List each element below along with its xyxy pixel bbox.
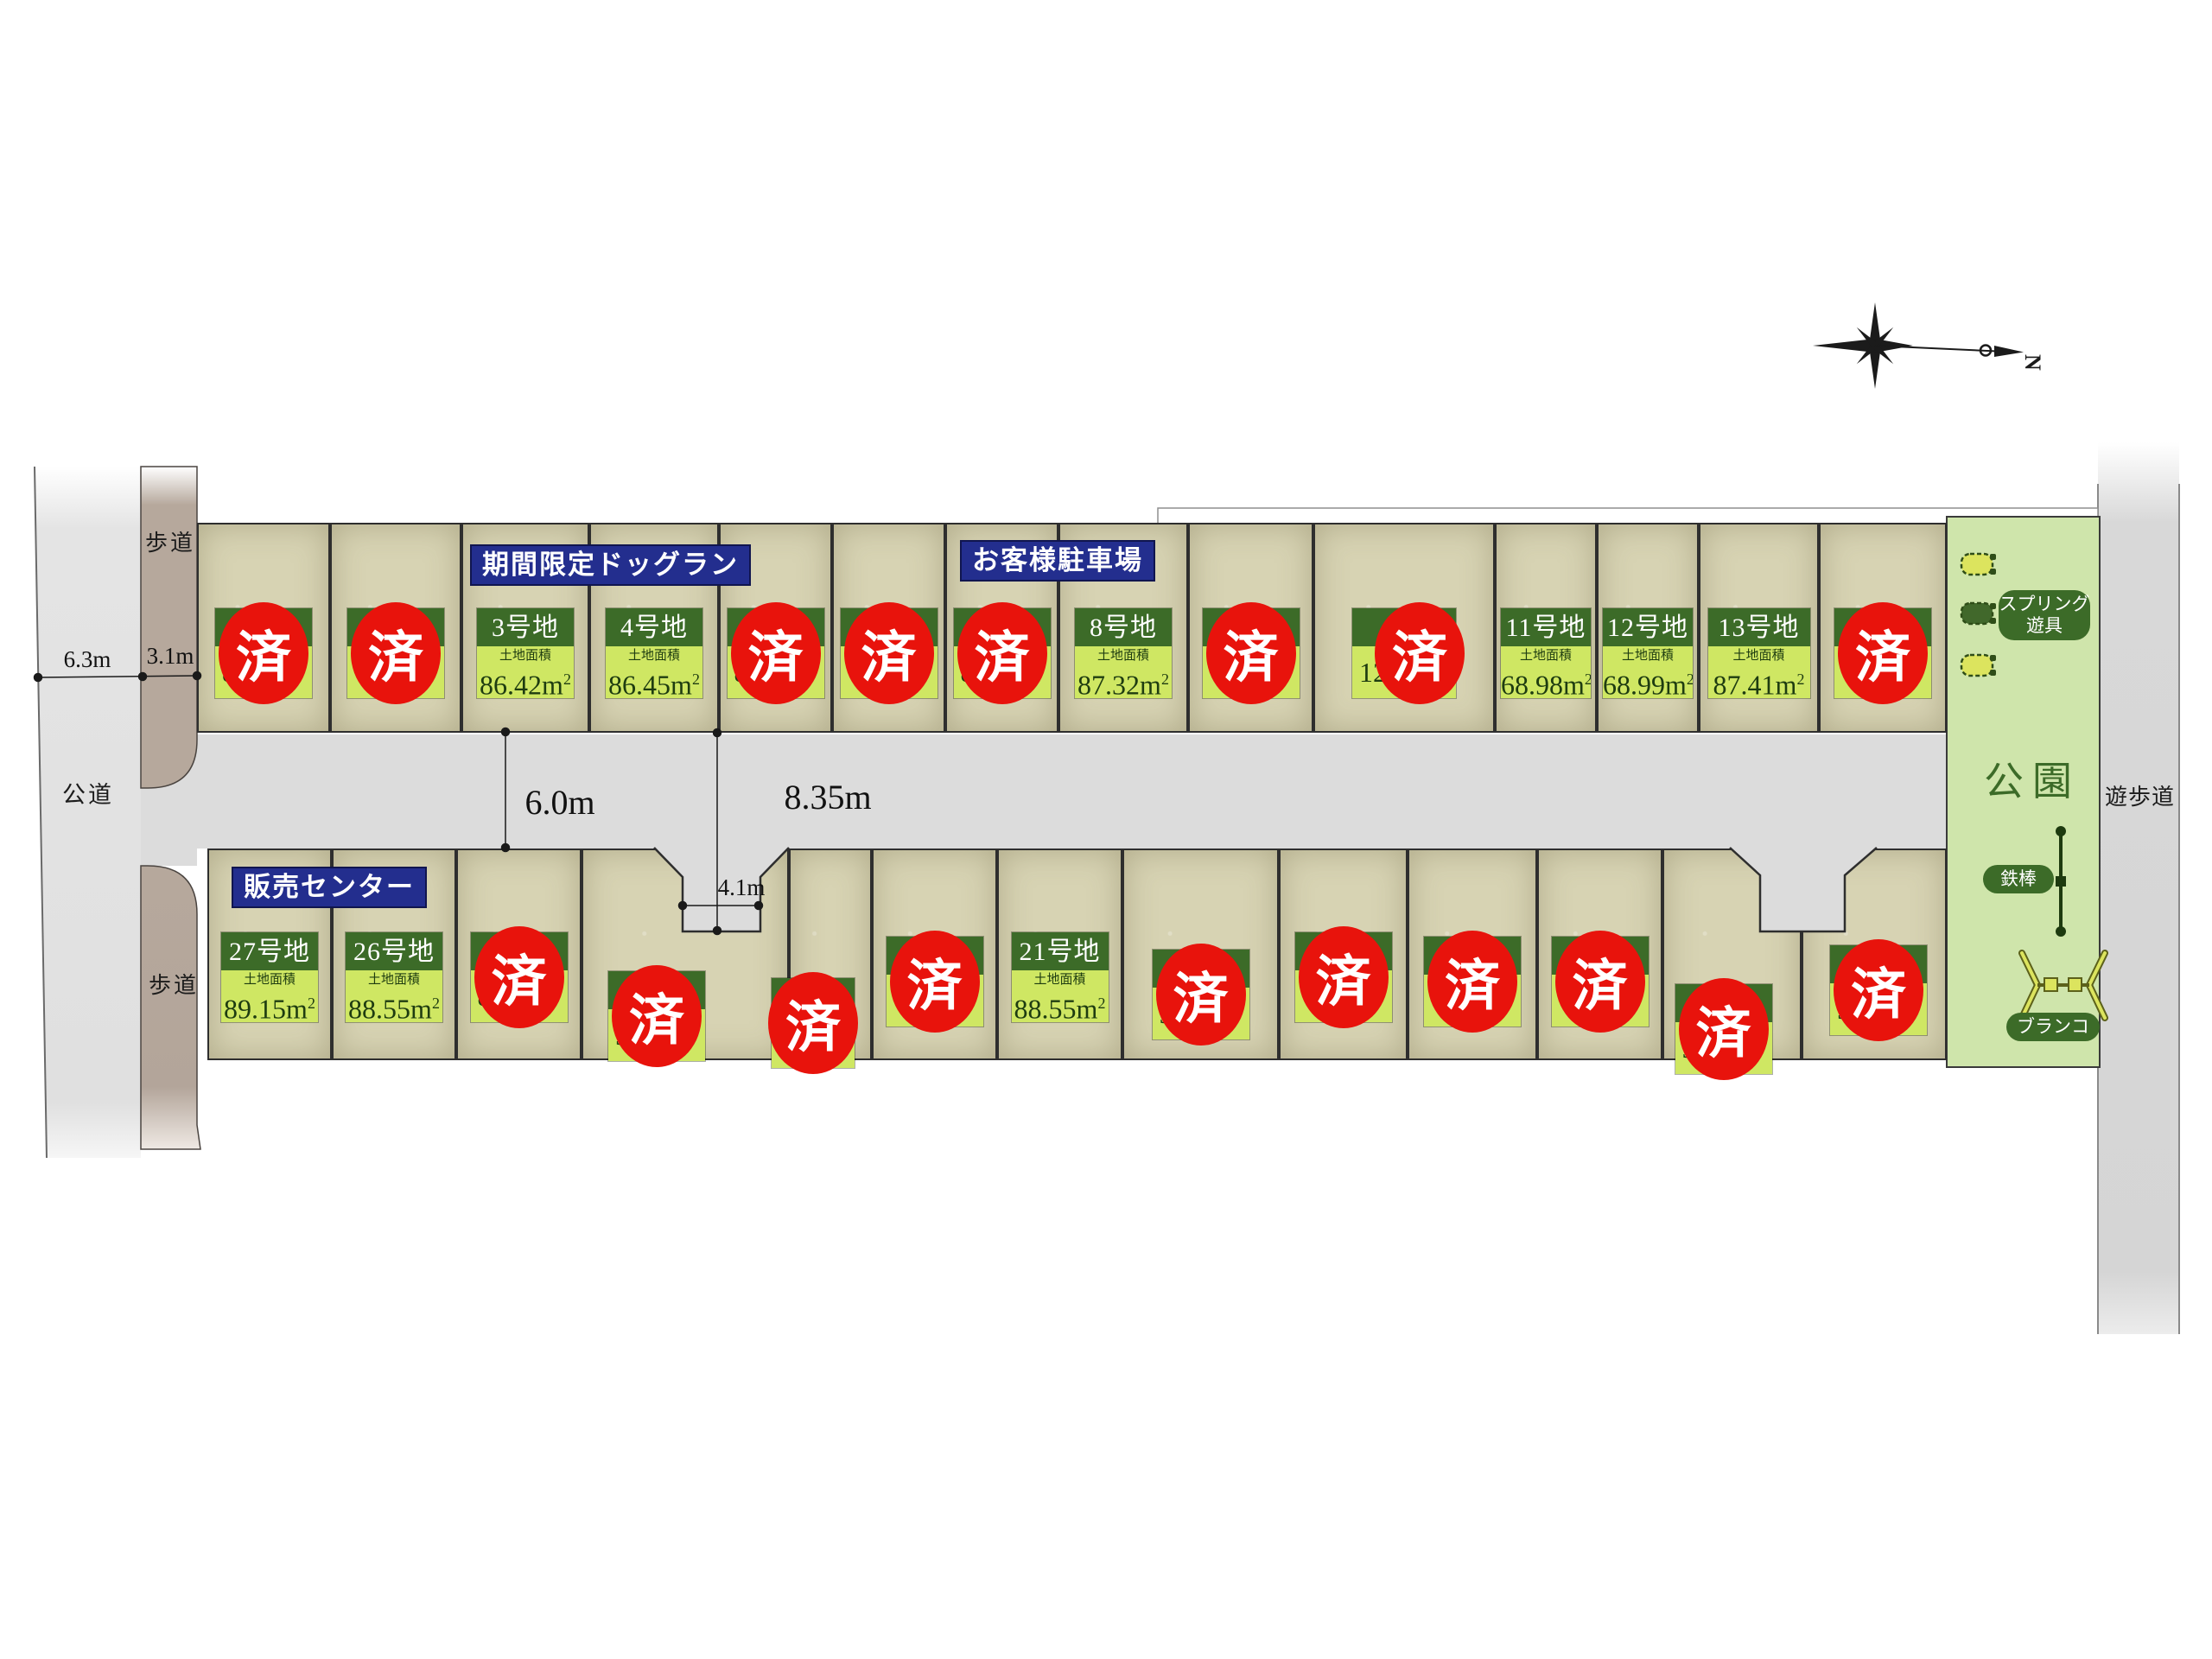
area-caption: 土地面積 — [1075, 646, 1172, 664]
lot-sold-top-2: 済 — [330, 523, 461, 733]
area-caption: 土地面積 — [346, 970, 442, 988]
lot-area-band: 土地面積88.55m2 — [346, 970, 442, 1022]
lot-8号地: 8号地土地面積87.32m2 — [1058, 523, 1188, 733]
sold-badge: 済 — [1834, 939, 1923, 1041]
lot-sold-bottom-10: 済 — [1408, 849, 1537, 1060]
site-plan-map: N 8済 済3号地土地面積86.42m24号地土地面積86.45m2 8済 済 … — [0, 0, 2212, 1659]
sold-badge: 済 — [1555, 931, 1645, 1033]
sold-badge: 済 — [612, 965, 702, 1067]
lot-area-band: 土地面積68.99m2 — [1603, 646, 1693, 698]
sold-badge: 済 — [890, 931, 980, 1033]
lot-area-band: 土地面積86.42m2 — [477, 646, 574, 698]
lot-sold-bottom-5: 9済 — [789, 849, 872, 1060]
lot-sold-bottom-12: 9済 — [1662, 849, 1802, 1060]
sold-badge: 済 — [351, 602, 441, 704]
lot-13号地: 13号地土地面積87.41m2 — [1699, 523, 1819, 733]
area-value: 88.55m2 — [1012, 988, 1109, 1022]
lot-sold-top-7: 8済 — [945, 523, 1058, 733]
lot-label: 12号地土地面積68.99m2 — [1603, 608, 1693, 698]
area-value: 68.99m2 — [1603, 664, 1693, 698]
lot-26号地: 26号地土地面積88.55m2 — [332, 849, 456, 1060]
lot-sold-top-10: 12済 — [1313, 523, 1495, 733]
lot-sold-bottom-8: 9済 — [1122, 849, 1279, 1060]
sold-badge: 済 — [1375, 602, 1465, 704]
area-value: 88.55m2 — [346, 988, 442, 1022]
area-value: 89.15m2 — [221, 988, 318, 1022]
lot-label: 3号地土地面積86.42m2 — [477, 608, 574, 698]
lot-number: 21号地 — [1012, 932, 1109, 970]
sold-badge: 済 — [1679, 978, 1769, 1080]
lot-label: 8号地土地面積87.32m2 — [1075, 608, 1172, 698]
sold-badge: 済 — [1427, 931, 1517, 1033]
sold-badge: 済 — [1206, 602, 1296, 704]
area-caption: 土地面積 — [477, 646, 574, 664]
lot-11号地: 11号地土地面積68.98m2 — [1495, 523, 1597, 733]
area-value: 87.32m2 — [1075, 664, 1172, 698]
lot-number: 4号地 — [606, 608, 702, 646]
lot-number: 26号地 — [346, 932, 442, 970]
lot-sold-top-1: 8済 — [197, 523, 330, 733]
sold-badge: 済 — [1299, 926, 1389, 1028]
lot-label: 21号地土地面積88.55m2 — [1012, 932, 1109, 1022]
area-caption: 土地面積 — [1603, 646, 1693, 664]
area-caption: 土地面積 — [606, 646, 702, 664]
area-caption: 土地面積 — [1501, 646, 1591, 664]
lot-area-band: 土地面積86.45m2 — [606, 646, 702, 698]
lot-sold-top-5: 8済 — [719, 523, 832, 733]
lot-number: 27号地 — [221, 932, 318, 970]
lot-sold-bottom-13: 9済 — [1802, 849, 1947, 1060]
lot-number: 11号地 — [1501, 608, 1591, 646]
lot-number: 13号地 — [1708, 608, 1810, 646]
lot-sold-bottom-9: 済 — [1279, 849, 1408, 1060]
lot-sold-top-14: 済 — [1819, 523, 1947, 733]
sold-badge: 済 — [844, 602, 934, 704]
area-caption: 土地面積 — [1708, 646, 1810, 664]
lot-area-band: 土地面積87.32m2 — [1075, 646, 1172, 698]
lot-area-band: 土地面積89.15m2 — [221, 970, 318, 1022]
area-caption: 土地面積 — [1012, 970, 1109, 988]
lot-number: 12号地 — [1603, 608, 1693, 646]
lot-27号地: 27号地土地面積89.15m2 — [207, 849, 332, 1060]
lot-area-band: 土地面積88.55m2 — [1012, 970, 1109, 1022]
area-value: 87.41m2 — [1708, 664, 1810, 698]
lot-label: 13号地土地面積87.41m2 — [1708, 608, 1810, 698]
area-value: 86.45m2 — [606, 664, 702, 698]
lot-area-band: 土地面積87.41m2 — [1708, 646, 1810, 698]
lot-number: 8号地 — [1075, 608, 1172, 646]
lot-label: 4号地土地面積86.45m2 — [606, 608, 702, 698]
lot-4号地: 4号地土地面積86.45m2 — [589, 523, 719, 733]
lot-sold-bottom-11: 済 — [1537, 849, 1662, 1060]
lot-area-band: 土地面積68.98m2 — [1501, 646, 1591, 698]
area-caption: 土地面積 — [221, 970, 318, 988]
lot-21号地: 21号地土地面積88.55m2 — [997, 849, 1122, 1060]
lot-sold-bottom-3: 8済 — [456, 849, 582, 1060]
lot-12号地: 12号地土地面積68.99m2 — [1597, 523, 1699, 733]
sold-badge: 済 — [731, 602, 821, 704]
area-value: 86.42m2 — [477, 664, 574, 698]
lot-3号地: 3号地土地面積86.42m2 — [461, 523, 589, 733]
sold-badge: 済 — [219, 602, 308, 704]
sold-badge: 済 — [957, 602, 1047, 704]
lot-sold-bottom-4: 9済 — [582, 849, 789, 1060]
lot-label: 11号地土地面積68.98m2 — [1501, 608, 1591, 698]
area-value: 68.98m2 — [1501, 664, 1591, 698]
sold-badge: 済 — [1156, 944, 1246, 1046]
sold-badge: 済 — [768, 972, 858, 1074]
lot-sold-top-6: 済 — [832, 523, 945, 733]
sold-badge: 済 — [474, 926, 564, 1028]
lots-container: 8済 済3号地土地面積86.42m24号地土地面積86.45m2 8済 済 8済… — [0, 0, 2212, 1659]
sold-badge: 済 — [1838, 602, 1928, 704]
lot-sold-top-9: 済 — [1188, 523, 1313, 733]
lot-number: 3号地 — [477, 608, 574, 646]
lot-label: 27号地土地面積89.15m2 — [221, 932, 318, 1022]
lot-sold-bottom-6: 済 — [872, 849, 997, 1060]
lot-label: 26号地土地面積88.55m2 — [346, 932, 442, 1022]
